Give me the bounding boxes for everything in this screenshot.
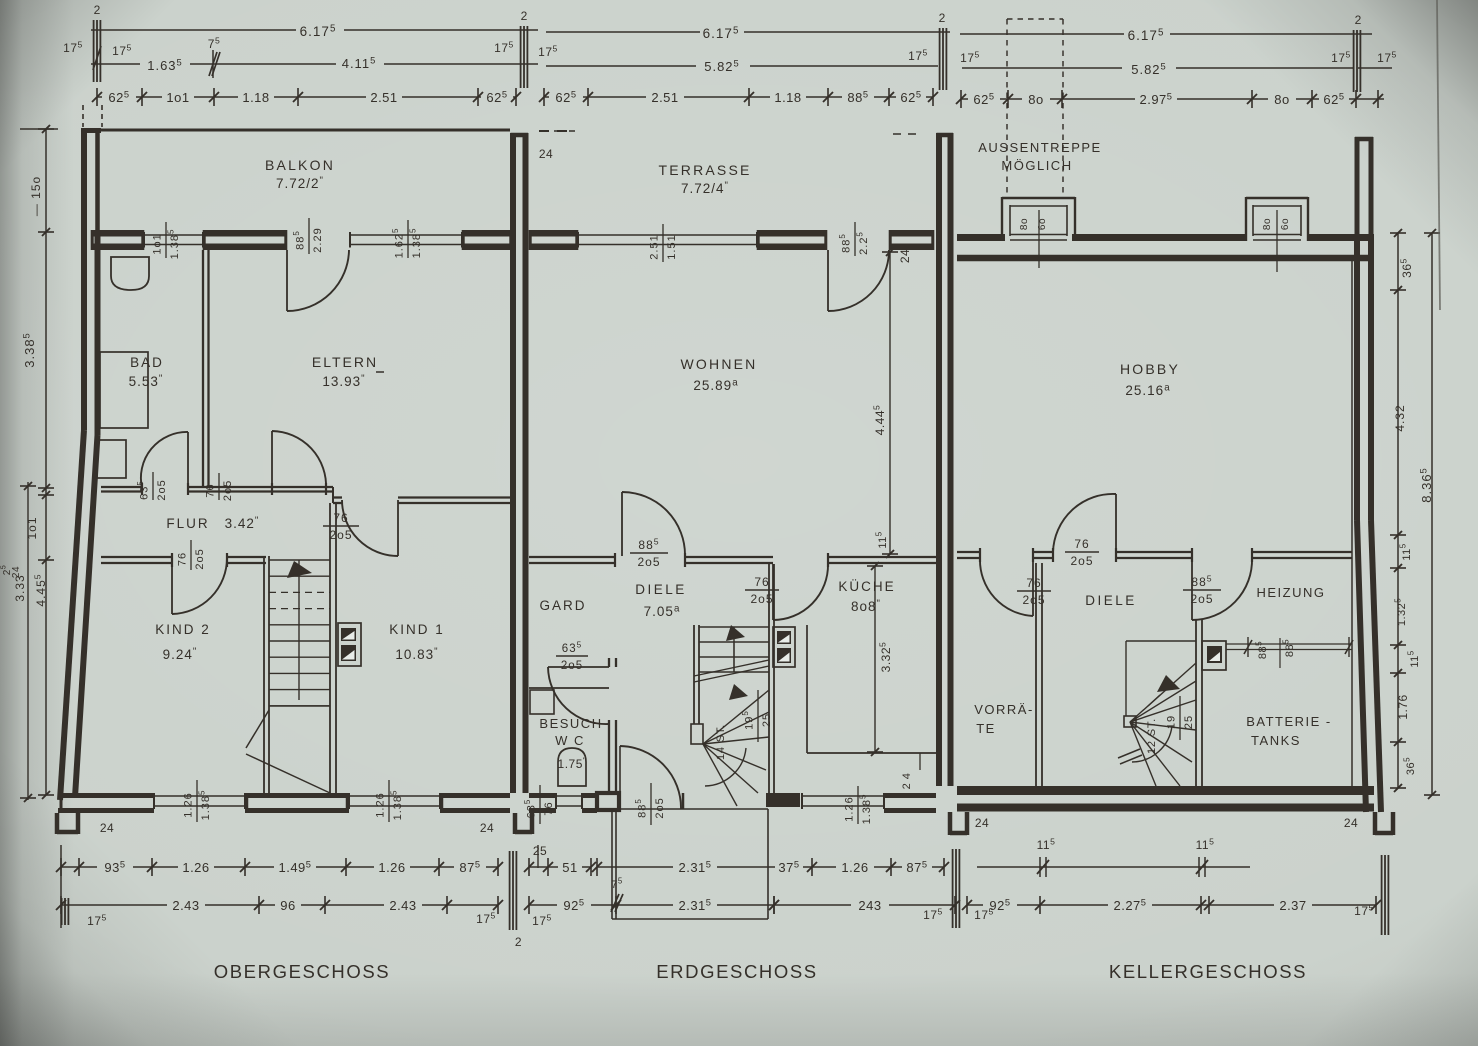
svg-text:5.53": 5.53" (129, 374, 164, 390)
svg-text:25.16a: 25.16a (1125, 383, 1170, 399)
svg-text:2.43: 2.43 (172, 898, 199, 913)
svg-text:BALKON: BALKON (265, 157, 335, 173)
svg-text:8o: 8o (1028, 92, 1043, 107)
svg-text:TERRASSE: TERRASSE (658, 162, 751, 178)
svg-text:AUSSENTREPPE: AUSSENTREPPE (978, 140, 1101, 155)
svg-text:175: 175 (87, 913, 107, 929)
svg-text:76: 76 (205, 483, 217, 497)
svg-text:75: 75 (611, 877, 623, 892)
svg-text:2.25: 2.25 (856, 231, 871, 255)
svg-text:2o5: 2o5 (637, 555, 660, 569)
svg-text:2o5: 2o5 (329, 528, 352, 542)
svg-text:14 ST.: 14 ST. (715, 724, 727, 760)
svg-text:6.175: 6.175 (300, 24, 337, 40)
svg-text:885: 885 (638, 537, 659, 553)
svg-text:KIND 2: KIND 2 (155, 622, 211, 637)
svg-text:625: 625 (486, 90, 507, 106)
svg-text:2o5: 2o5 (1070, 554, 1093, 568)
svg-text:24: 24 (1344, 816, 1358, 830)
svg-text:2.37: 2.37 (1279, 898, 1306, 913)
svg-text:1.26: 1.26 (183, 792, 195, 817)
svg-text:25.89a: 25.89a (693, 378, 738, 394)
svg-text:6.175: 6.175 (1128, 28, 1165, 44)
svg-text:1.385: 1.385 (167, 229, 182, 260)
svg-text:5.825: 5.825 (1131, 62, 1167, 78)
svg-text:2: 2 (515, 935, 523, 949)
svg-text:1.18: 1.18 (242, 90, 269, 105)
svg-text:3.385: 3.385 (22, 332, 38, 368)
svg-text:HEIZUNG: HEIZUNG (1257, 585, 1326, 600)
svg-text:2.43: 2.43 (389, 898, 416, 913)
svg-text:115: 115 (1037, 837, 1056, 853)
svg-text:HOBBY: HOBBY (1120, 361, 1180, 377)
svg-text:1.325: 1.325 (1394, 598, 1409, 626)
svg-text:2.975: 2.975 (1139, 92, 1172, 108)
svg-text:2o5: 2o5 (750, 592, 773, 606)
svg-text:KIND 1: KIND 1 (389, 622, 445, 637)
svg-text:19: 19 (1166, 715, 1178, 729)
svg-text:6o: 6o (1037, 218, 1048, 230)
svg-text:24: 24 (898, 249, 912, 263)
svg-text:625: 625 (900, 90, 921, 106)
svg-text:8o: 8o (1019, 218, 1030, 230)
svg-text:8o: 8o (1274, 92, 1289, 107)
svg-text:7.05a: 7.05a (644, 604, 681, 620)
svg-text:75: 75 (208, 36, 220, 52)
svg-text:WOHNEN: WOHNEN (681, 356, 758, 372)
svg-text:175: 175 (923, 907, 943, 923)
svg-text:12 ST.: 12 ST. (1146, 718, 1158, 754)
svg-text:GARD: GARD (539, 598, 586, 613)
svg-text:2: 2 (939, 11, 946, 25)
svg-text:76: 76 (177, 552, 189, 566)
svg-text:MÖGLICH: MÖGLICH (1001, 158, 1072, 173)
svg-text:1.76: 1.76 (1396, 694, 1410, 719)
svg-text:243: 243 (858, 898, 881, 913)
svg-text:ELTERN: ELTERN (312, 354, 378, 370)
svg-text:2.29: 2.29 (312, 227, 324, 252)
svg-text:3.42": 3.42" (225, 516, 260, 532)
svg-text:115: 115 (1196, 837, 1215, 853)
svg-text:— 15o: — 15o (29, 176, 43, 216)
svg-text:175: 175 (974, 907, 994, 923)
svg-text:24: 24 (539, 147, 553, 161)
svg-text:1.625: 1.625 (391, 228, 406, 259)
svg-text:635: 635 (523, 799, 538, 819)
svg-text:7.72/4": 7.72/4" (681, 181, 729, 197)
svg-text:175: 175 (1354, 903, 1374, 919)
svg-text:2.275: 2.275 (1113, 898, 1146, 914)
svg-text:875: 875 (459, 860, 480, 876)
svg-text:76: 76 (1026, 576, 1041, 590)
svg-text:2: 2 (521, 9, 528, 23)
svg-text:2o5: 2o5 (1190, 592, 1213, 606)
svg-text:1.26: 1.26 (378, 860, 405, 875)
svg-text:175: 175 (112, 43, 132, 59)
svg-text:175: 175 (1331, 50, 1351, 66)
svg-text:1.385: 1.385 (198, 790, 213, 821)
svg-text:2.51: 2.51 (649, 234, 661, 259)
svg-text:2o5: 2o5 (194, 548, 206, 569)
svg-text:5.825: 5.825 (704, 59, 740, 75)
svg-text:1.385: 1.385 (390, 790, 405, 821)
svg-text:1.26: 1.26 (375, 792, 387, 817)
svg-text:115: 115 (1407, 650, 1422, 667)
svg-text:96: 96 (280, 898, 295, 913)
svg-text:2.315: 2.315 (678, 860, 711, 876)
svg-text:175: 175 (960, 50, 980, 66)
svg-text:25: 25 (761, 713, 773, 727)
svg-text:365: 365 (1399, 258, 1415, 278)
svg-text:175: 175 (1377, 50, 1397, 66)
svg-text:25: 25 (533, 844, 547, 858)
svg-text:13.93": 13.93" (322, 374, 365, 390)
svg-text:1.18: 1.18 (774, 90, 801, 105)
svg-text:115: 115 (875, 531, 890, 548)
svg-text:BAD: BAD (130, 355, 164, 370)
svg-text:1.385: 1.385 (859, 794, 874, 825)
svg-text:24: 24 (100, 821, 114, 835)
svg-text:2o5: 2o5 (654, 797, 666, 818)
svg-text:885: 885 (292, 230, 307, 250)
svg-text:625: 625 (973, 92, 994, 108)
svg-text:375: 375 (778, 860, 799, 876)
svg-text:24: 24 (975, 816, 989, 830)
svg-text:885: 885 (1191, 574, 1212, 590)
svg-text:175: 175 (476, 911, 496, 927)
svg-text:2o5: 2o5 (561, 660, 583, 672)
svg-text:1.51: 1.51 (666, 234, 678, 259)
svg-text:25: 25 (1183, 715, 1195, 729)
svg-text:1.75": 1.75" (558, 756, 587, 772)
svg-text:885: 885 (838, 233, 853, 253)
svg-text:2o5: 2o5 (156, 479, 168, 500)
svg-text:935: 935 (104, 860, 125, 876)
svg-text:1.635: 1.635 (147, 58, 183, 74)
svg-text:KELLERGESCHOSS: KELLERGESCHOSS (1109, 961, 1307, 982)
svg-text:10.83": 10.83" (395, 647, 438, 663)
svg-text:OBERGESCHOSS: OBERGESCHOSS (214, 961, 391, 982)
svg-text:2.51: 2.51 (370, 90, 397, 105)
svg-text:2 4: 2 4 (901, 773, 913, 790)
svg-text:1o1: 1o1 (166, 90, 189, 105)
svg-text:7.72/2": 7.72/2" (276, 176, 324, 192)
svg-text:1o1: 1o1 (25, 516, 39, 539)
svg-text:885: 885 (847, 90, 868, 106)
svg-text:1.495: 1.495 (278, 860, 311, 876)
svg-text:TE: TE (976, 721, 996, 736)
svg-text:W C: W C (555, 733, 585, 748)
svg-text:2: 2 (94, 3, 101, 17)
svg-text:175: 175 (908, 48, 928, 64)
svg-text:4.115: 4.115 (342, 56, 377, 72)
svg-text:24: 24 (11, 566, 22, 578)
svg-text:VORRÄ-: VORRÄ- (974, 702, 1034, 717)
svg-text:6o: 6o (1280, 218, 1291, 230)
svg-text:76: 76 (754, 575, 769, 589)
svg-text:ERDGESCHOSS: ERDGESCHOSS (656, 961, 818, 982)
svg-text:76: 76 (543, 801, 555, 815)
svg-text:115: 115 (1399, 543, 1414, 560)
svg-text:4.445: 4.445 (872, 405, 888, 436)
svg-text:195: 195 (741, 710, 756, 730)
svg-text:9.24": 9.24" (163, 647, 198, 663)
svg-text:2.51: 2.51 (651, 90, 678, 105)
svg-text:BESUCH: BESUCH (539, 716, 602, 731)
svg-text:1o1: 1o1 (152, 233, 164, 254)
svg-text:FLUR: FLUR (166, 516, 209, 531)
svg-text:635: 635 (136, 480, 151, 500)
svg-text:76: 76 (1074, 537, 1089, 551)
svg-text:3.325: 3.325 (878, 642, 894, 673)
svg-text:24: 24 (480, 821, 494, 835)
svg-text:885: 885 (1282, 639, 1297, 657)
svg-text:51: 51 (562, 860, 577, 875)
svg-text:KÜCHE: KÜCHE (838, 579, 895, 594)
svg-text:925: 925 (563, 898, 584, 914)
svg-text:BATTERIE -: BATTERIE - (1246, 714, 1332, 729)
svg-text:625: 625 (555, 90, 576, 106)
svg-text:6.175: 6.175 (703, 26, 740, 42)
svg-text:875: 875 (906, 860, 927, 876)
svg-text:625: 625 (108, 90, 129, 106)
svg-text:2: 2 (1355, 13, 1362, 27)
svg-text:625: 625 (1323, 92, 1344, 108)
svg-text:4.32: 4.32 (1393, 404, 1407, 431)
svg-text:DIELE: DIELE (635, 582, 687, 597)
svg-text:DIELE: DIELE (1085, 593, 1137, 608)
svg-text:1.26: 1.26 (844, 796, 856, 821)
svg-text:1.26: 1.26 (841, 860, 868, 875)
svg-text:TANKS: TANKS (1251, 733, 1301, 748)
svg-text:365: 365 (1403, 757, 1418, 775)
svg-text:175: 175 (494, 40, 514, 56)
svg-text:175: 175 (532, 913, 552, 929)
svg-text:885: 885 (634, 798, 649, 818)
svg-text:1.385: 1.385 (409, 228, 424, 259)
svg-text:2.315: 2.315 (678, 898, 711, 914)
svg-text:2o5: 2o5 (222, 480, 234, 501)
svg-text:8o8": 8o8" (851, 599, 881, 615)
svg-text:175: 175 (538, 44, 558, 60)
svg-text:635: 635 (562, 641, 582, 656)
svg-text:1.26: 1.26 (182, 860, 209, 875)
svg-text:175: 175 (63, 40, 83, 56)
svg-text:8o: 8o (1262, 218, 1273, 230)
